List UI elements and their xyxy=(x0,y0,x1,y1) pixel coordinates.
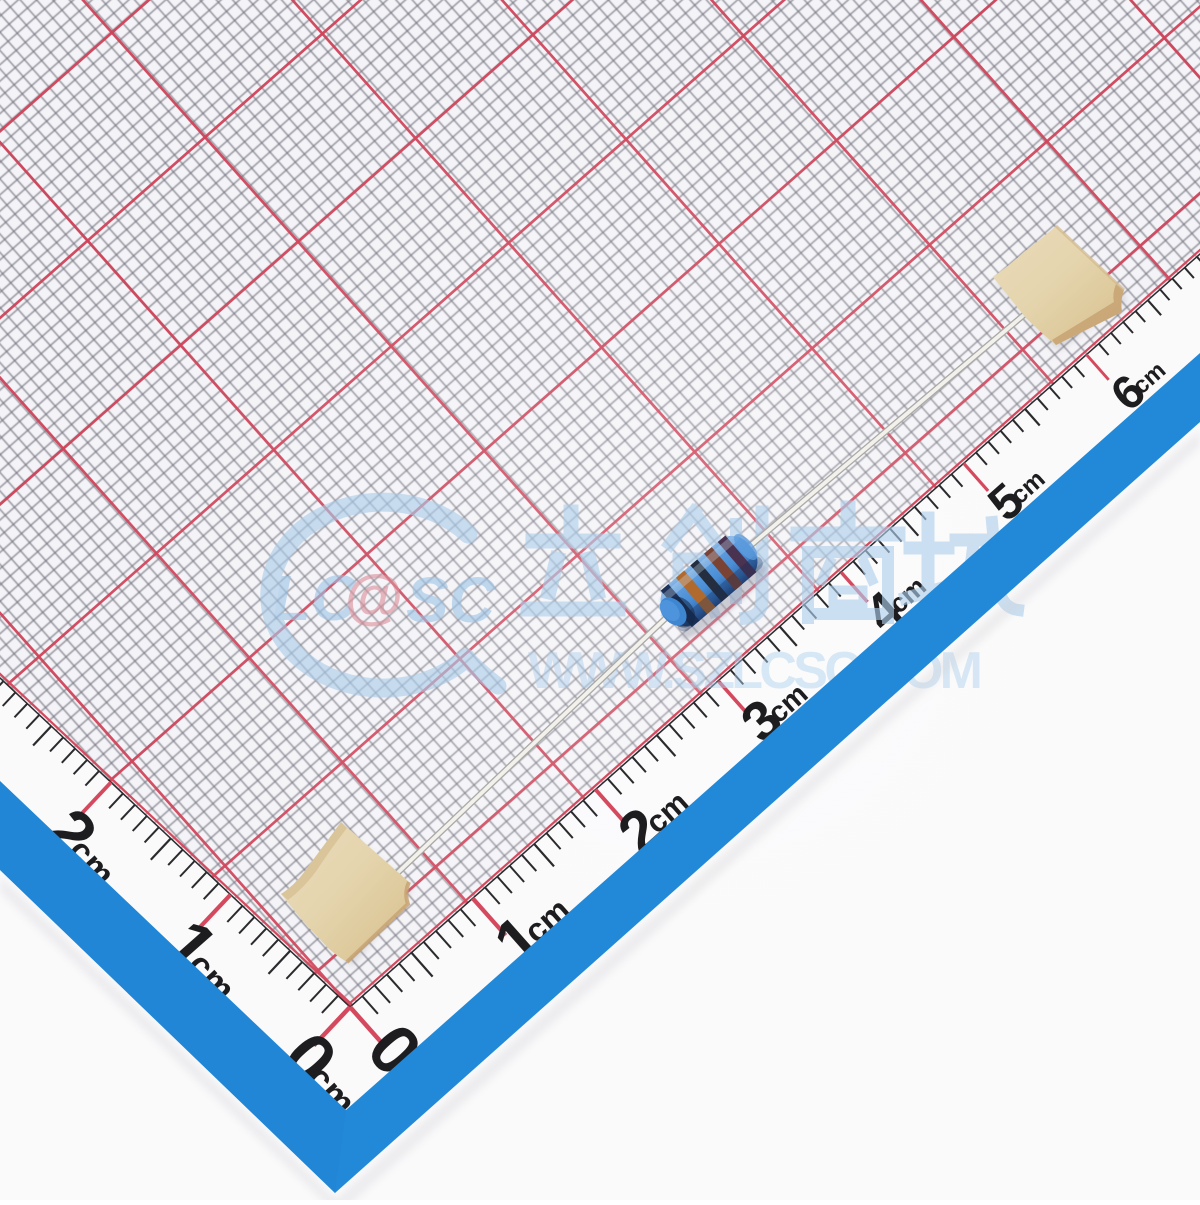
svg-text:@: @ xyxy=(345,563,404,630)
svg-text:SC: SC xyxy=(406,564,496,636)
